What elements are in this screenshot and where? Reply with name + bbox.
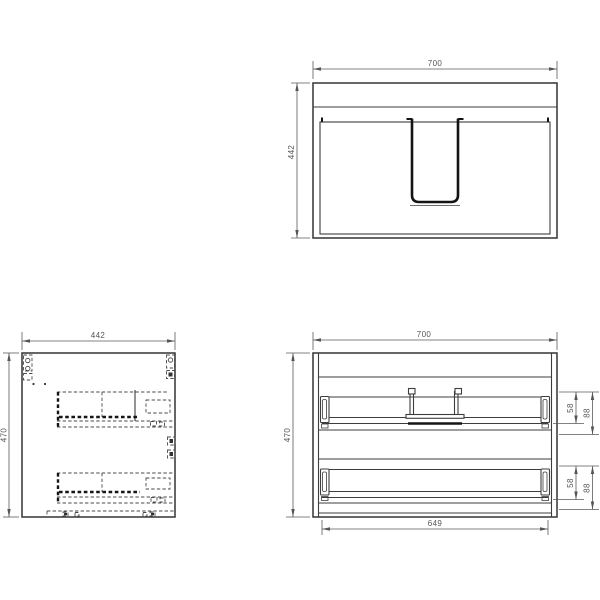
sink-cutout: [407, 119, 464, 206]
dim-label-upper-58: 58: [566, 403, 575, 413]
dim-upper-drawer: 58 88: [553, 392, 599, 435]
dim-label-lower-58: 58: [566, 478, 575, 488]
dim-label-side-width: 442: [91, 331, 106, 340]
dim-label-top-width: 700: [428, 59, 443, 68]
dim-label-side-height: 470: [0, 428, 9, 443]
wall-bracket-right: [167, 355, 175, 379]
wall-bracket-left: [24, 355, 33, 380]
slide-fitting-right-upper: [168, 437, 176, 445]
lower-drawer-hidden: [57, 473, 175, 503]
technical-drawing-canvas: 700 442 442: [0, 0, 600, 600]
dim-side-width: 442: [22, 331, 175, 350]
front-view: 700 470 649: [283, 330, 599, 535]
drawer-slide-lower-right: [541, 469, 550, 501]
dim-label-lower-88: 88: [583, 483, 592, 493]
top-view: 700 442: [287, 59, 557, 238]
dim-front-inner-width: 649: [322, 519, 548, 535]
dim-label-top-depth: 442: [287, 145, 296, 160]
plinth-hidden: [47, 511, 175, 517]
screw-dot: [44, 383, 46, 385]
cabinet-outline-front: [313, 353, 557, 517]
dim-front-width: 700: [313, 330, 557, 350]
drawing-svg: 700 442 442: [0, 0, 600, 600]
dim-label-front-inner-width: 649: [428, 519, 443, 528]
upper-drawer-hidden: [57, 390, 175, 427]
side-view: 442 470: [0, 331, 175, 517]
plumbing-notch: [406, 389, 464, 424]
dim-label-front-width: 700: [417, 330, 432, 339]
cabinet-outline-top: [313, 83, 557, 238]
dim-front-height: 470: [283, 353, 310, 517]
dim-label-upper-88: 88: [583, 408, 592, 418]
drawer-slide-lower-left: [321, 469, 330, 501]
slide-fitting-right-lower: [168, 450, 176, 458]
dim-top-depth: 442: [287, 83, 310, 238]
inner-basin-outline: [320, 122, 550, 234]
dim-label-front-height: 470: [283, 428, 292, 443]
dim-lower-drawer: 58 88: [553, 466, 599, 510]
upper-drawer-box: [319, 389, 552, 431]
lower-drawer-box: [319, 469, 552, 503]
dim-top-width: 700: [313, 59, 557, 79]
screw-dot: [32, 383, 34, 385]
dim-side-height: 470: [0, 353, 19, 517]
